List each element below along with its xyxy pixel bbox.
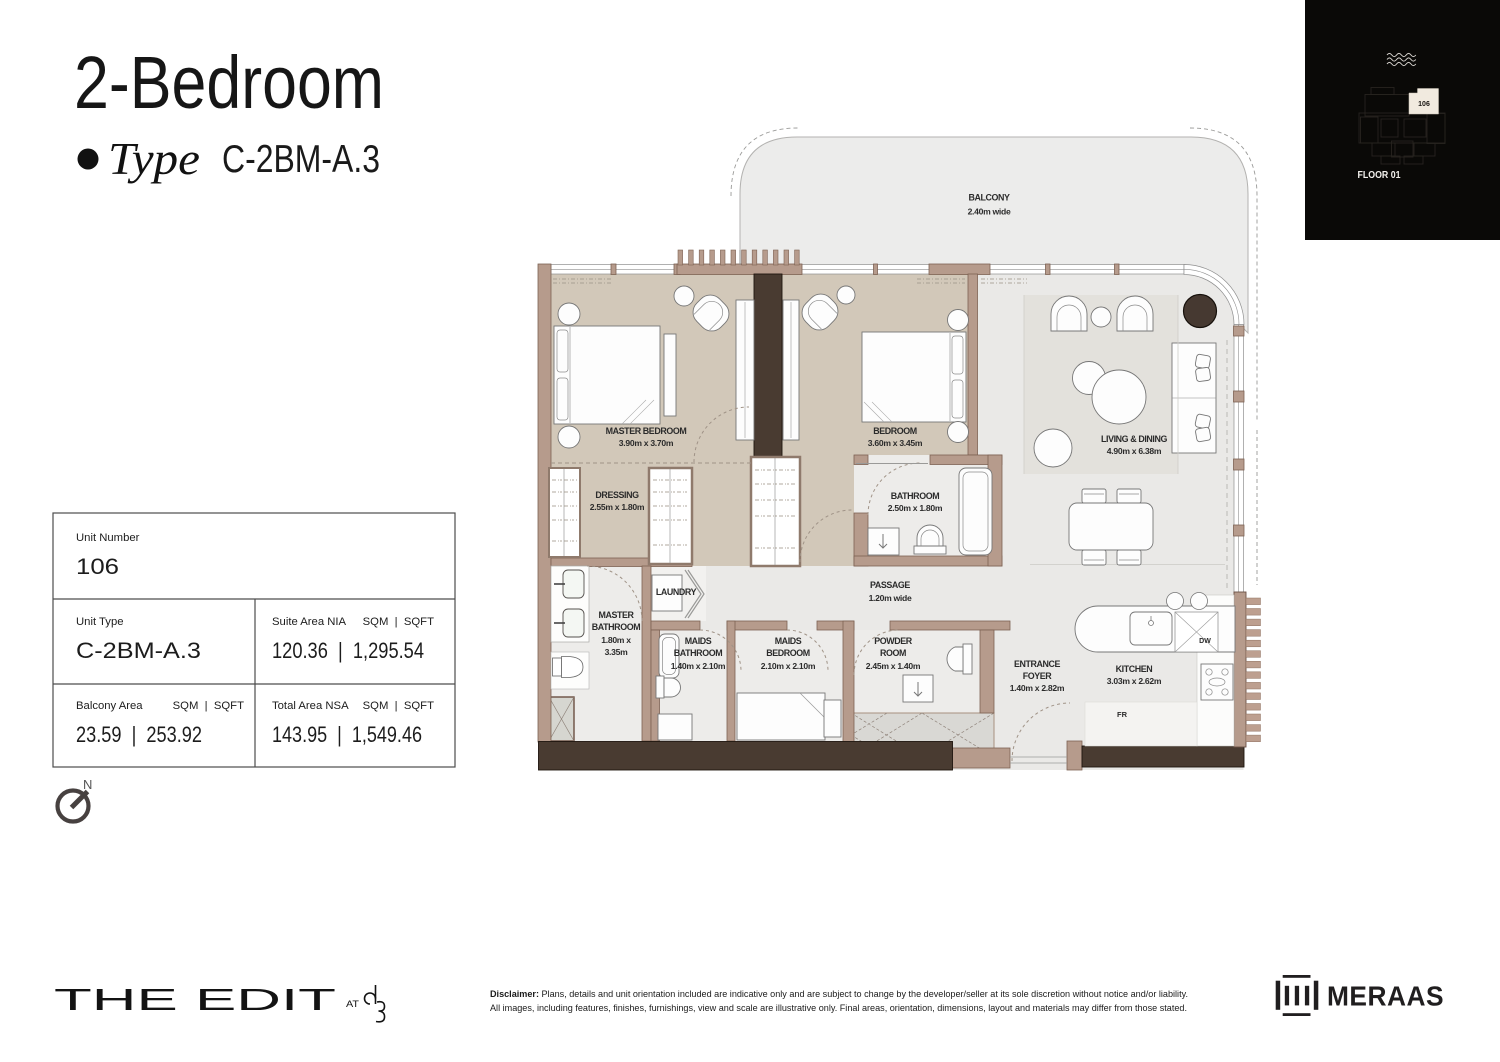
- svg-text:FOYER: FOYER: [1023, 671, 1053, 681]
- svg-text:MAIDS: MAIDS: [685, 636, 712, 646]
- svg-text:4.90m x 6.38m: 4.90m x 6.38m: [1107, 446, 1162, 456]
- svg-text:1.40m x 2.10m: 1.40m x 2.10m: [671, 661, 726, 671]
- svg-text:FLOOR 01: FLOOR 01: [1358, 169, 1401, 181]
- svg-text:Suite Area NIA: Suite Area NIA: [272, 616, 347, 628]
- svg-text:2.55m x 1.80m: 2.55m x 1.80m: [590, 502, 645, 512]
- svg-text:BEDROOM: BEDROOM: [873, 426, 917, 436]
- svg-text:SQM | SQFT: SQM | SQFT: [173, 700, 244, 712]
- svg-text:3.03m x 2.62m: 3.03m x 2.62m: [1107, 676, 1162, 686]
- svg-text:106: 106: [76, 554, 119, 579]
- svg-text:1.80m x: 1.80m x: [601, 635, 631, 645]
- svg-text:DW: DW: [1199, 638, 1211, 645]
- svg-text:23.59 | 253.92: 23.59 | 253.92: [76, 722, 202, 747]
- svg-text:1.20m wide: 1.20m wide: [869, 593, 912, 603]
- svg-text:ENTRANCE: ENTRANCE: [1014, 659, 1061, 669]
- svg-text:C-2BM-A.3: C-2BM-A.3: [76, 638, 201, 663]
- svg-text:AT: AT: [346, 999, 359, 1010]
- svg-text:106: 106: [1418, 101, 1430, 108]
- svg-text:Balcony Area: Balcony Area: [76, 700, 143, 712]
- svg-text:BALCONY: BALCONY: [968, 193, 1010, 203]
- svg-text:LIVING & DINING: LIVING & DINING: [1101, 434, 1167, 444]
- svg-text:120.36 | 1,295.54: 120.36 | 1,295.54: [272, 638, 424, 663]
- svg-text:KITCHEN: KITCHEN: [1116, 664, 1153, 674]
- svg-text:Disclaimer: Plans, details and: Disclaimer: Plans, details and unit orie…: [490, 989, 1188, 1000]
- svg-text:THE EDIT: THE EDIT: [54, 982, 336, 1017]
- svg-text:BATHROOM: BATHROOM: [891, 491, 939, 501]
- svg-text:Type: Type: [108, 134, 200, 184]
- svg-text:2.40m wide: 2.40m wide: [968, 207, 1011, 217]
- svg-text:MERAAS: MERAAS: [1327, 981, 1444, 1012]
- svg-text:SQM | SQFT: SQM | SQFT: [363, 700, 434, 712]
- svg-text:POWDER: POWDER: [874, 636, 913, 646]
- svg-text:MASTER BEDROOM: MASTER BEDROOM: [606, 426, 687, 436]
- svg-text:2.10m x 2.10m: 2.10m x 2.10m: [761, 661, 816, 671]
- svg-text:SQM | SQFT: SQM | SQFT: [363, 616, 434, 628]
- svg-text:PASSAGE: PASSAGE: [870, 580, 910, 590]
- svg-text:N: N: [83, 777, 92, 792]
- svg-text:LAUNDRY: LAUNDRY: [656, 587, 697, 597]
- svg-text:Unit Type: Unit Type: [76, 616, 124, 628]
- svg-text:All images, including features: All images, including features, finishes…: [490, 1003, 1187, 1014]
- svg-text:BATHROOM: BATHROOM: [674, 648, 722, 658]
- svg-text:1.40m x 2.82m: 1.40m x 2.82m: [1010, 683, 1065, 693]
- svg-text:FR: FR: [1117, 710, 1128, 719]
- svg-text:C-2BM-A.3: C-2BM-A.3: [222, 138, 380, 181]
- svg-text:DRESSING: DRESSING: [595, 490, 639, 500]
- svg-text:3.90m x 3.70m: 3.90m x 3.70m: [619, 438, 674, 448]
- svg-text:2.50m x 1.80m: 2.50m x 1.80m: [888, 503, 943, 513]
- svg-text:Unit Number: Unit Number: [76, 532, 140, 544]
- svg-text:2.45m x 1.40m: 2.45m x 1.40m: [866, 661, 921, 671]
- svg-text:MAIDS: MAIDS: [775, 636, 802, 646]
- svg-text:3.60m x 3.45m: 3.60m x 3.45m: [868, 438, 923, 448]
- svg-text:143.95 | 1,549.46: 143.95 | 1,549.46: [272, 722, 422, 747]
- svg-text:ROOM: ROOM: [880, 648, 906, 658]
- svg-text:MASTER: MASTER: [598, 610, 634, 620]
- svg-text:BEDROOM: BEDROOM: [766, 648, 810, 658]
- svg-text:3.35m: 3.35m: [605, 647, 629, 657]
- svg-text:Total Area NSA: Total Area NSA: [272, 700, 349, 712]
- svg-text:2-Bedroom: 2-Bedroom: [74, 41, 384, 124]
- svg-text:BATHROOM: BATHROOM: [592, 622, 640, 632]
